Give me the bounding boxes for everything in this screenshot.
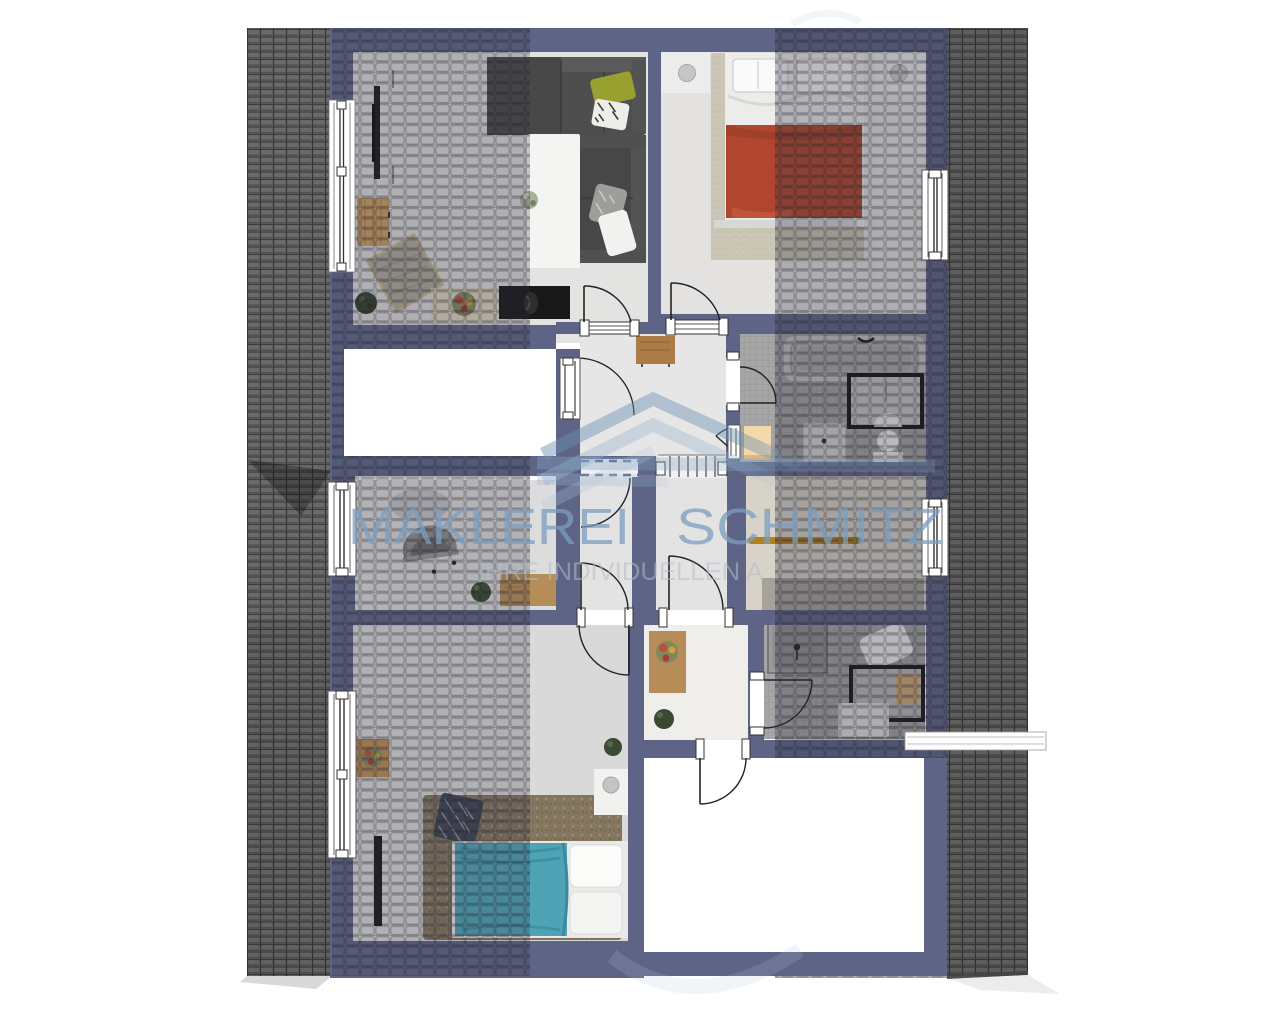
svg-text:MAKLEREI: MAKLEREI <box>348 498 630 555</box>
svg-text:IHRE INDIVIDUELLEN A: IHRE INDIVIDUELLEN A <box>478 558 763 586</box>
svg-text:SCHMITZ: SCHMITZ <box>676 498 943 555</box>
